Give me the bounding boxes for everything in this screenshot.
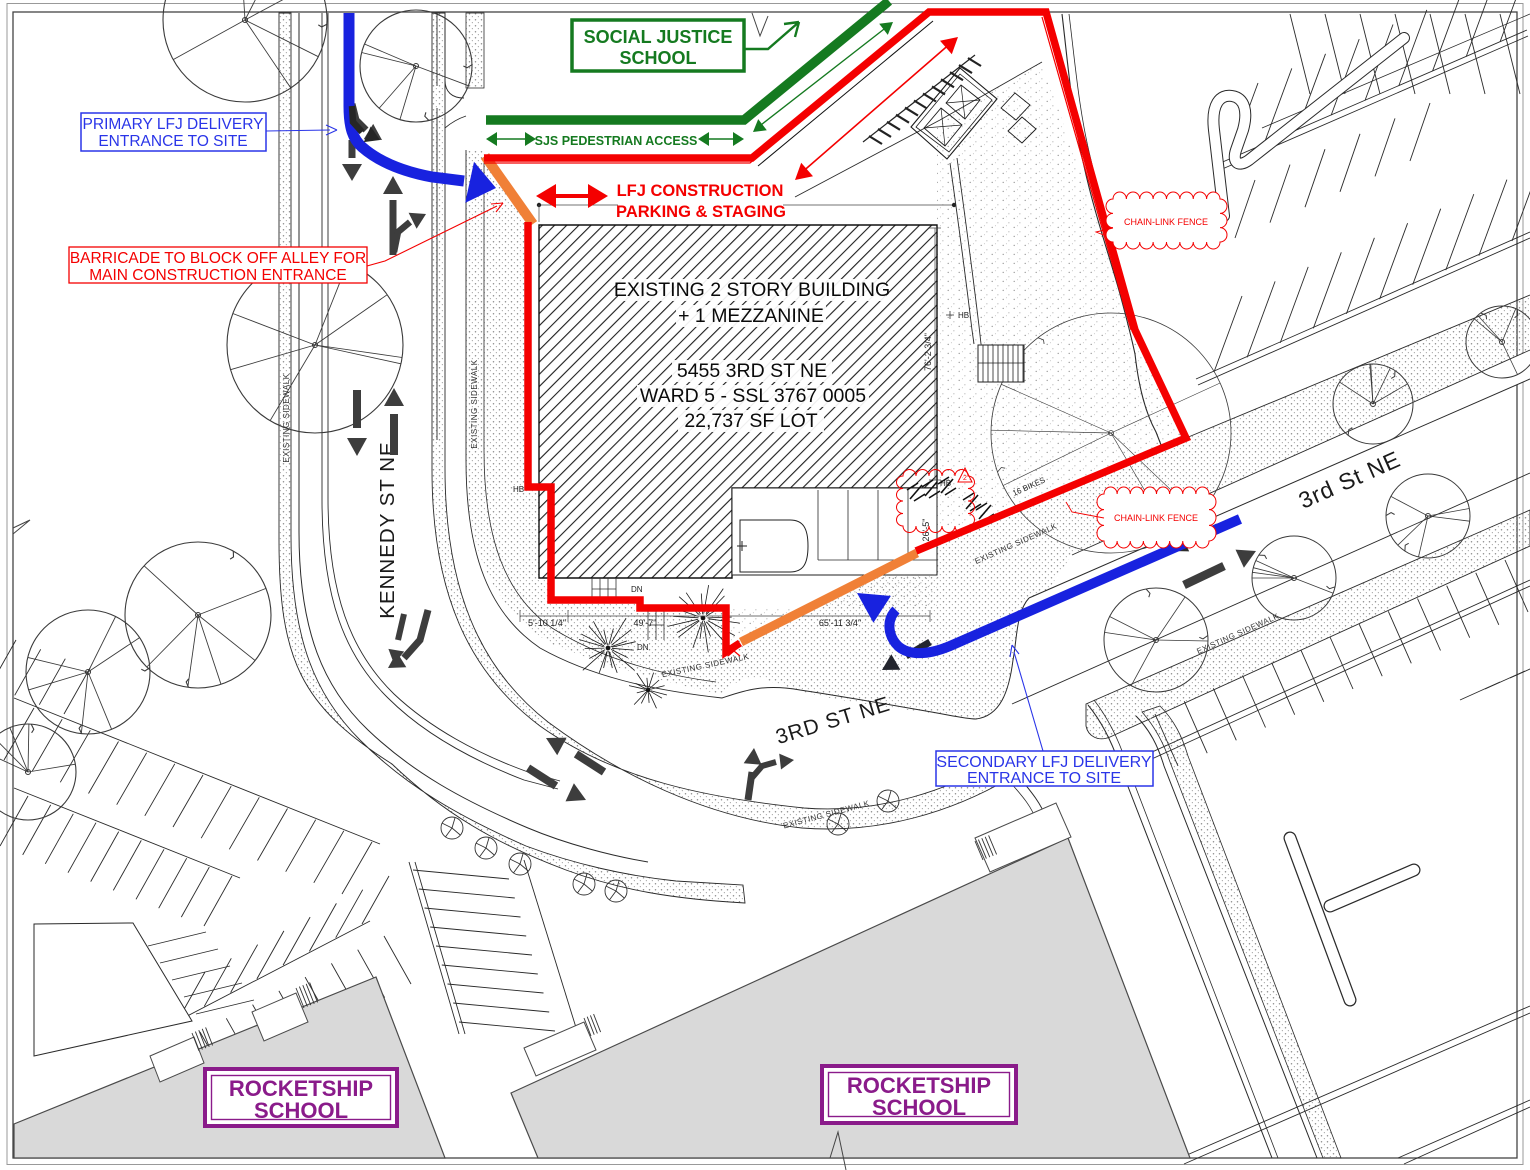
svg-text:26'-5": 26'-5" <box>921 519 931 542</box>
svg-text:SCHOOL: SCHOOL <box>872 1095 966 1120</box>
svg-text:+ 1 MEZZANINE: + 1 MEZZANINE <box>678 305 824 327</box>
svg-text:PRIMARY LFJ DELIVERY: PRIMARY LFJ DELIVERY <box>83 116 264 133</box>
svg-text:HB: HB <box>513 485 524 494</box>
svg-text:BARRICADE TO BLOCK OFF ALLEY F: BARRICADE TO BLOCK OFF ALLEY FOR <box>70 250 366 267</box>
svg-text:SCHOOL: SCHOOL <box>254 1098 348 1123</box>
svg-text:LFJ CONSTRUCTION: LFJ CONSTRUCTION <box>617 182 784 200</box>
svg-text:PARKING & STAGING: PARKING & STAGING <box>616 203 786 221</box>
svg-text:SJS PEDESTRIAN ACCESS: SJS PEDESTRIAN ACCESS <box>535 134 698 148</box>
svg-text:2: 2 <box>963 475 967 482</box>
svg-text:DN: DN <box>637 643 649 652</box>
svg-text:CHAIN-LINK FENCE: CHAIN-LINK FENCE <box>1124 217 1208 227</box>
svg-text:DN: DN <box>631 585 643 594</box>
svg-text:MAIN CONSTRUCTION ENTRANCE: MAIN CONSTRUCTION ENTRANCE <box>89 267 346 284</box>
svg-text:22,737 SF LOT: 22,737 SF LOT <box>684 410 817 432</box>
svg-text:49'-7": 49'-7" <box>634 618 657 628</box>
svg-text:SOCIAL JUSTICE: SOCIAL JUSTICE <box>584 27 733 47</box>
svg-text:5455 3RD ST NE: 5455 3RD ST NE <box>677 360 827 382</box>
svg-text:EXISTING SIDEWALK: EXISTING SIDEWALK <box>282 373 291 462</box>
svg-text:EXISTING SIDEWALK: EXISTING SIDEWALK <box>470 359 479 448</box>
svg-text:EXISTING 2 STORY BUILDING: EXISTING 2 STORY BUILDING <box>614 279 890 301</box>
svg-text:CHAIN-LINK FENCE: CHAIN-LINK FENCE <box>1114 513 1198 523</box>
svg-text:HB: HB <box>958 311 969 320</box>
svg-text:KENNEDY ST NE: KENNEDY ST NE <box>376 441 399 618</box>
svg-text:ENTRANCE TO SITE: ENTRANCE TO SITE <box>967 770 1121 787</box>
svg-text:65'-11 3/4": 65'-11 3/4" <box>819 618 861 628</box>
svg-text:SECONDARY LFJ DELIVERY: SECONDARY LFJ DELIVERY <box>936 754 1152 771</box>
svg-text:76'-2 3/4": 76'-2 3/4" <box>923 333 933 371</box>
svg-text:ENTRANCE TO SITE: ENTRANCE TO SITE <box>98 133 247 150</box>
svg-text:SCHOOL: SCHOOL <box>619 48 696 68</box>
svg-text:WARD 5 - SSL 3767 0005: WARD 5 - SSL 3767 0005 <box>640 385 866 407</box>
svg-text:5'-10 1/4": 5'-10 1/4" <box>528 618 566 628</box>
